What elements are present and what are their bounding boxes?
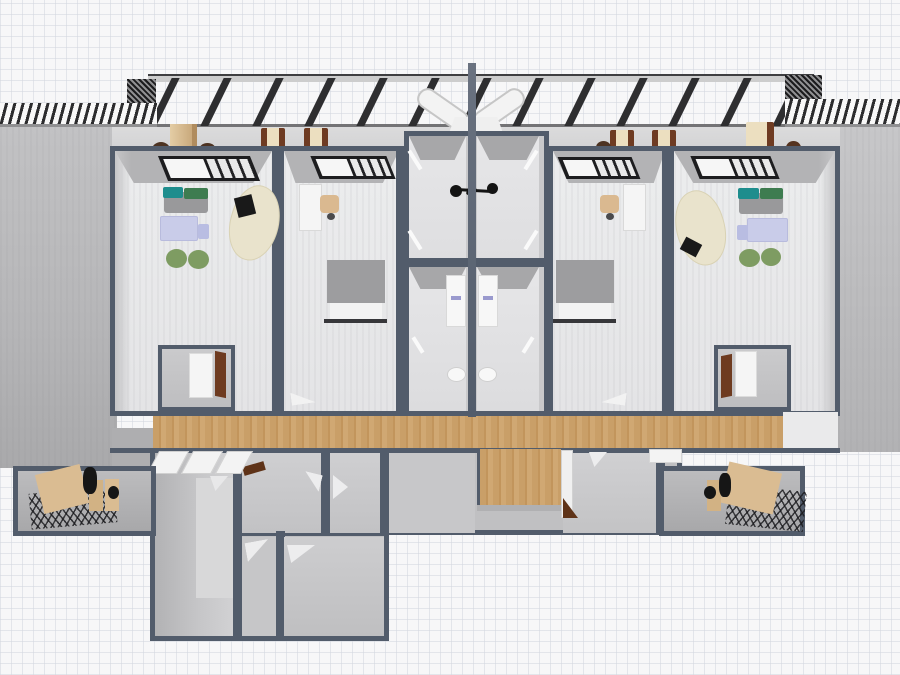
room1-bed[interactable]: [160, 216, 198, 241]
room1-window-pane: [163, 159, 211, 178]
ceiling-lamp-globe[interactable]: [450, 185, 462, 197]
vanity-left[interactable]: [446, 275, 466, 327]
entry-landing-wood: [477, 449, 561, 508]
room1-sofa-cushion-green[interactable]: [184, 188, 208, 199]
balcony-chair[interactable]: [304, 128, 328, 148]
room2-chair-base[interactable]: [327, 213, 335, 220]
right-wing-wall: [838, 126, 900, 452]
ceiling-lamp-globe[interactable]: [487, 183, 498, 194]
wall-room3-room4: [662, 146, 674, 416]
room4-bed-pillow[interactable]: [737, 225, 748, 240]
room3-desk-chair[interactable]: [600, 195, 619, 213]
bath-mid-wall: [404, 258, 549, 267]
counter-sink[interactable]: [649, 449, 682, 463]
room1-ottoman[interactable]: [188, 250, 209, 269]
room4-ottoman[interactable]: [761, 248, 781, 266]
stair-chair-dark[interactable]: [83, 467, 97, 494]
closet-right-wardrobe[interactable]: [735, 351, 757, 397]
center-party-wall: [468, 63, 476, 417]
room4-east-wall-band: [819, 151, 835, 411]
room2-bed-sheet[interactable]: [330, 303, 382, 320]
closet-left-door[interactable]: [215, 351, 226, 398]
room4-sofa-cushion-teal[interactable]: [738, 188, 759, 199]
lower-wall-b: [321, 448, 330, 533]
stairwell-room-inner-floor: [196, 478, 235, 598]
balcony-desk[interactable]: [170, 124, 197, 148]
room3-bed-blanket[interactable]: [556, 260, 614, 303]
stair-chair-dark[interactable]: [704, 486, 716, 499]
room2-bed-base: [324, 319, 387, 323]
room4-bed[interactable]: [747, 218, 788, 242]
room1-ottoman[interactable]: [166, 249, 187, 268]
room1-window-grid-pane: [206, 159, 256, 178]
room4-ottoman[interactable]: [739, 249, 760, 267]
room3-window-grid-pane: [595, 160, 636, 176]
vanity-label-mark: [451, 296, 461, 300]
stair-chair-dark[interactable]: [108, 486, 119, 499]
louvered-awning-right: [785, 99, 900, 127]
wall-room1-room2: [272, 146, 284, 416]
left-wing-wall: [0, 106, 117, 468]
vanity-label-mark: [483, 296, 493, 300]
room3-wardrobe[interactable]: [623, 184, 646, 231]
lower-wall-a: [233, 448, 242, 641]
lower-mid-floor: [389, 453, 475, 533]
room4-window-grid-pane: [732, 159, 776, 176]
room4-window-pane: [696, 159, 736, 176]
room3-chair-base[interactable]: [606, 213, 614, 220]
hallway-wood-floor: [153, 416, 803, 450]
balcony-chair[interactable]: [261, 128, 285, 148]
lower-wall-c: [380, 448, 389, 533]
lower-room-right-floor: [563, 453, 658, 533]
toilet-left[interactable]: [447, 367, 466, 382]
room1-sofa-cushion-teal[interactable]: [163, 187, 183, 198]
room3-window-pane: [563, 160, 598, 176]
room2-wardrobe[interactable]: [299, 184, 322, 231]
room1-bed-pillow[interactable]: [198, 224, 209, 239]
closet-left-wardrobe[interactable]: [189, 353, 213, 398]
room3-bed-sheet[interactable]: [559, 303, 611, 320]
hallway-east-floor: [783, 412, 838, 453]
room1-west-wall-band: [115, 151, 131, 411]
toilet-right[interactable]: [478, 367, 497, 382]
room2-window-pane: [316, 159, 354, 176]
room4-sofa-cushion-green[interactable]: [760, 188, 783, 199]
closet-right-door[interactable]: [721, 354, 732, 398]
room2-bed-blanket[interactable]: [327, 260, 385, 303]
room3-bed-base: [553, 319, 616, 323]
floorplan-canvas[interactable]: [0, 0, 900, 675]
room2-desk-chair[interactable]: [320, 195, 339, 213]
stair-chair-dark[interactable]: [719, 473, 731, 497]
vanity-right[interactable]: [478, 275, 498, 327]
entry-landing-edge: [477, 505, 561, 511]
louvered-awning-left: [0, 103, 157, 127]
balcony-chair[interactable]: [746, 122, 774, 149]
room2-window-grid-pane: [350, 159, 392, 176]
